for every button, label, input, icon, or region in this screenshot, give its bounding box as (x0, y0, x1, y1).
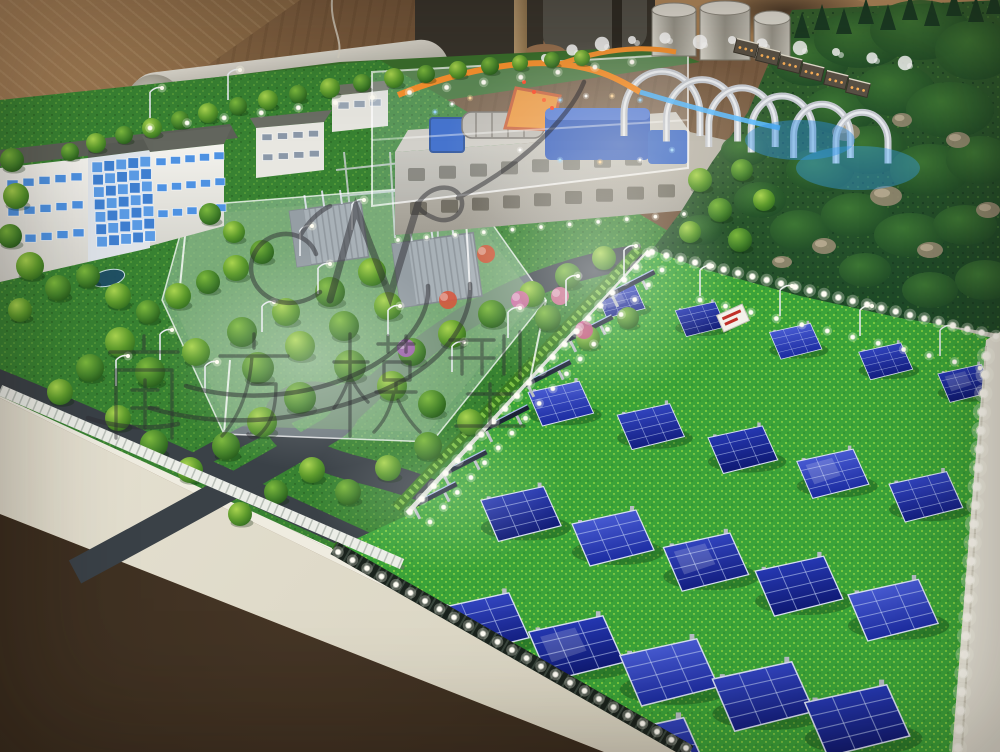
photo-scale-model-scene: 南方模型 (0, 0, 1000, 752)
photo-vignette (0, 0, 1000, 752)
